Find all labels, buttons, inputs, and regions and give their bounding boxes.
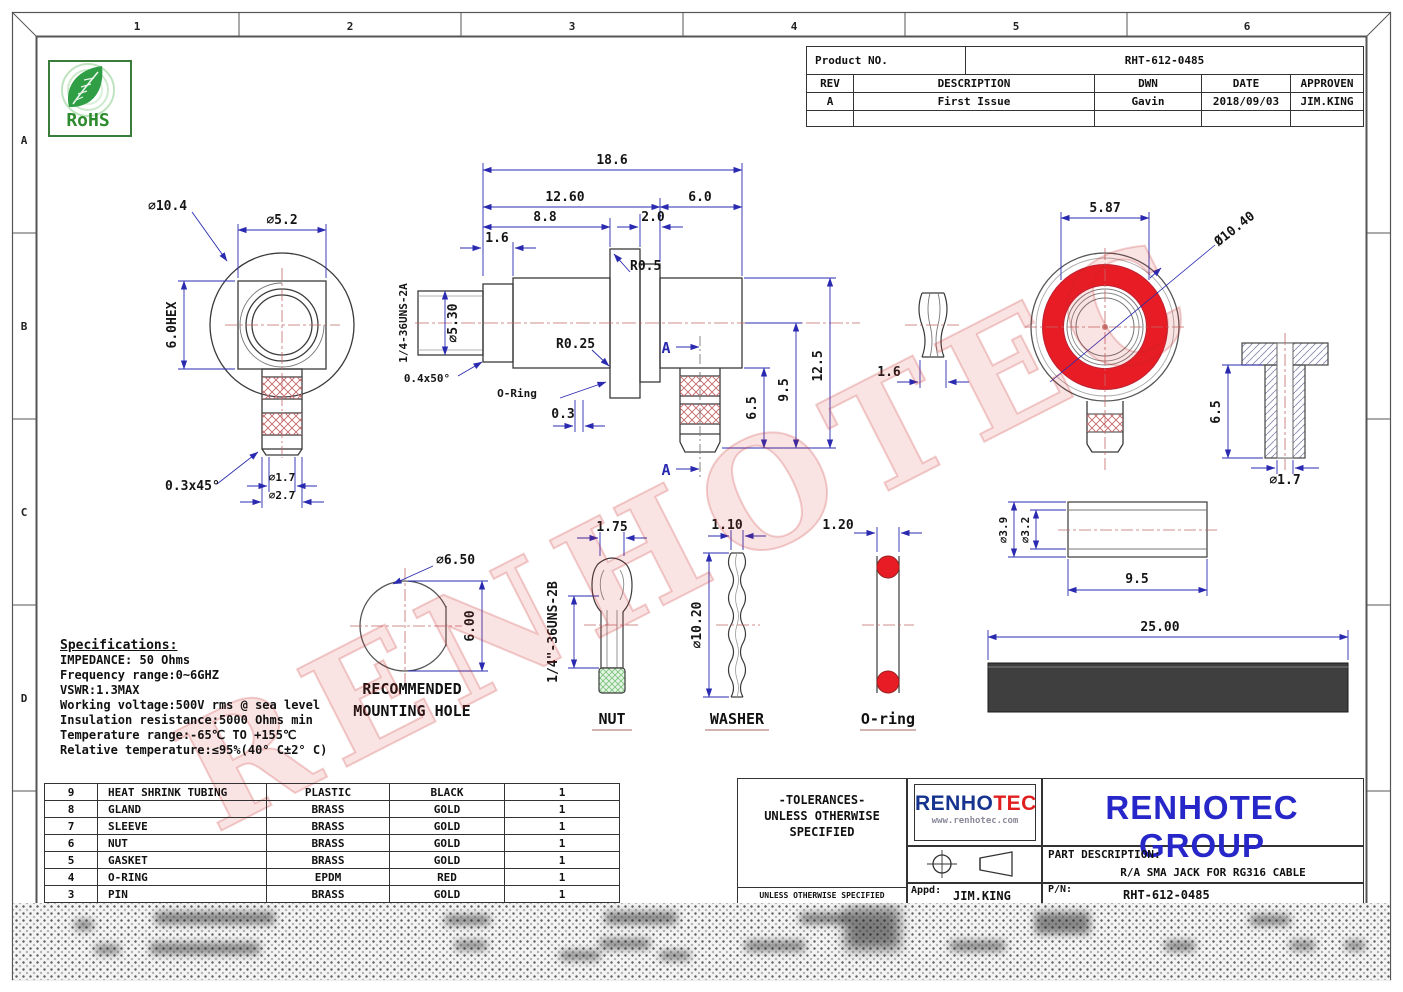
zone-left-c: C [21,506,28,519]
dim-sleeve-od: ⌀3.9 [997,517,1010,544]
table-row: 3 PIN BRASS GOLD 1 [45,886,619,903]
third-angle-projection-icon [918,849,1033,879]
appd-label: Appd: [911,885,941,896]
zone-left-a: A [21,134,28,147]
part-material: BRASS [266,852,389,868]
zone-top-5: 5 [1013,20,1020,33]
part-no: 6 [45,835,97,851]
part-finish: GOLD [389,801,504,817]
renhotec-logo: RENHOTEC www.renhotec.com [914,784,1036,841]
zone-left-d: D [21,692,28,705]
dim-sleeve-id: ⌀3.2 [1019,517,1032,544]
part-finish: RED [389,869,504,885]
dim-groove-03: 0.3 [551,407,574,422]
part-no: 5 [45,852,97,868]
table-row: 8 GLAND BRASS GOLD 1 [45,801,619,818]
dim-tpart-17: ⌀1.7 [1269,473,1300,488]
part-description-label: PART DESCRIPTION: [1048,848,1161,861]
dim-front-587: 5.87 [1089,201,1120,216]
dim-left-square-width: ⌀5.2 [266,213,297,228]
dim-thread-dia: ⌀5.30 [446,303,461,342]
specifications-title: Specifications: [60,638,370,653]
rev-value: A [807,93,853,110]
part-no: 8 [45,801,97,817]
part-finish: GOLD [389,818,504,834]
part-description-value: R/A SMA JACK FOR RG316 CABLE [1068,866,1358,879]
dim-left-pin-dia: ⌀1.7 [269,471,296,484]
dim-body-length: 12.60 [545,190,584,205]
col-header-dwn: DWN [1094,75,1201,92]
rohs-logo: RoHS [48,60,132,137]
dim-sleeve-length: 9.5 [1125,572,1148,587]
part-qty: 1 [504,886,619,902]
part-qty: 1 [504,852,619,868]
product-no-value: RHT-612-0485 [965,47,1363,74]
spec-working-voltage: Working voltage:500V rms @ sea level [60,698,370,713]
dim-left-hex: 6.0HEX [165,301,180,348]
approven-value: JIM.KING [1290,93,1363,110]
spec-frequency: Frequency range:0~6GHZ [60,668,370,683]
part-material: EPDM [266,869,389,885]
zone-top-2: 2 [347,20,354,33]
spec-insulation: Insulation resistance:5000 Ohms min [60,713,370,728]
label-washer: WASHER [710,710,765,728]
watermark-text: RENHOTEC [152,200,1231,866]
dim-tpart-65: 6.5 [1209,400,1224,423]
tolerances-line2: UNLESS OTHERWISE [738,809,906,823]
zone-top-3: 3 [569,20,576,33]
part-finish: GOLD [389,886,504,902]
appd-value: JIM.KING [953,889,1011,903]
spec-vswr: VSWR:1.3MAX [60,683,370,698]
part-finish: BLACK [389,784,504,800]
part-material: BRASS [266,818,389,834]
dim-radius-025: R0.25 [556,337,595,352]
zone-top-4: 4 [791,20,798,33]
dim-step-length: 1.6 [485,231,509,246]
spec-impedance: IMPEDANCE: 50 Ohms [60,653,370,668]
part-finish: GOLD [389,852,504,868]
product-revision-table: Product NO. RHT-612-0485 REV DESCRIPTION… [806,46,1364,127]
product-no-label: Product NO. [807,47,965,74]
spec-relative-temp: Relative temperature:≤95%(40° C±2° C) [60,743,370,758]
label-oring-callout: O-Ring [497,387,537,400]
dim-left-stem-dia: ⌀2.7 [269,489,296,502]
part-finish: GOLD [389,835,504,851]
tolerances-line3: SPECIFIED [738,825,906,839]
part-material: BRASS [266,886,389,902]
col-header-description: DESCRIPTION [853,75,1094,92]
part-no: 3 [45,886,97,902]
part-qty: 1 [504,818,619,834]
dim-left-chamfer: 0.3x45° [165,479,220,494]
redacted-blur-band [13,903,1390,980]
label-oring: O-ring [861,710,915,728]
heatshrink-bar [988,663,1348,712]
dim-chamfer-04x50: 0.4x50° [404,372,450,385]
dwn-value: Gavin [1094,93,1201,110]
rohs-leaf-icon: RoHS [50,62,126,131]
part-name: PIN [97,886,266,902]
sleeve-view [1068,502,1207,557]
label-nut: NUT [598,710,625,728]
drawing-sheet: 1 2 3 4 5 6 A B C D [0,0,1403,992]
title-block: -TOLERANCES- UNLESS OTHERWISE SPECIFIED … [737,778,1364,907]
dim-flange-gap: 2.0 [641,210,665,225]
dim-left-outer-dia: ⌀10.4 [148,199,187,214]
part-no: 4 [45,869,97,885]
dim-radius-05: R0.5 [630,259,661,274]
specifications-block: Specifications: IMPEDANCE: 50 Ohms Frequ… [60,638,370,758]
logo-text-tec: TEC [993,792,1037,815]
part-name: NUT [97,835,266,851]
table-row: 4 O-RING EPDM RED 1 [45,869,619,886]
tolerances-line1: -TOLERANCES- [738,793,906,807]
description-value: First Issue [853,93,1094,110]
zone-left-b: B [21,320,28,333]
part-name: HEAT SHRINK TUBING [97,784,266,800]
part-name: GLAND [97,801,266,817]
date-value: 2018/09/03 [1201,93,1290,110]
part-material: PLASTIC [266,784,389,800]
dim-rear-length: 6.0 [688,190,712,205]
section-label-a-top: A [661,339,670,357]
parts-list-table: 9 HEAT SHRINK TUBING PLASTIC BLACK 1 8 G… [44,783,620,903]
part-name: O-RING [97,869,266,885]
part-name: SLEEVE [97,818,266,834]
projection-symbol [918,849,1033,879]
pn-label: P/N: [1048,884,1072,895]
part-material: BRASS [266,801,389,817]
part-qty: 1 [504,784,619,800]
part-qty: 1 [504,801,619,817]
table-row: 7 SLEEVE BRASS GOLD 1 [45,818,619,835]
part-qty: 1 [504,835,619,851]
label-thread-spec-2a: 1/4-36UNS-2A [397,283,410,363]
logo-url: www.renhotec.com [915,816,1035,826]
small-note: UNLESS OTHERWISE SPECIFIED [738,891,906,900]
logo-text-renho: RENHO [915,792,993,815]
part-material: BRASS [266,835,389,851]
col-header-date: DATE [1201,75,1290,92]
zone-top-6: 6 [1244,20,1251,33]
table-row: 6 NUT BRASS GOLD 1 [45,835,619,852]
dim-heatshrink-length: 25.00 [1140,620,1179,635]
col-header-rev: REV [807,75,853,92]
rohs-text: RoHS [66,110,109,131]
table-row: 9 HEAT SHRINK TUBING PLASTIC BLACK 1 [45,784,619,801]
oring-view [877,556,899,693]
dim-front-dia-1040: Ø10.40 [1211,209,1258,250]
spec-temperature: Temperature range:-65℃ TO +155℃ [60,728,370,743]
part-no: 9 [45,784,97,800]
pn-value: RHT-612-0485 [1123,888,1210,902]
table-row: 5 GASKET BRASS GOLD 1 [45,852,619,869]
col-header-approven: APPROVEN [1290,75,1363,92]
dim-total-length: 18.6 [596,153,627,168]
part-qty: 1 [504,869,619,885]
part-no: 7 [45,818,97,834]
zone-top-1: 1 [134,20,141,33]
dim-front-length: 8.8 [533,210,557,225]
part-name: GASKET [97,852,266,868]
